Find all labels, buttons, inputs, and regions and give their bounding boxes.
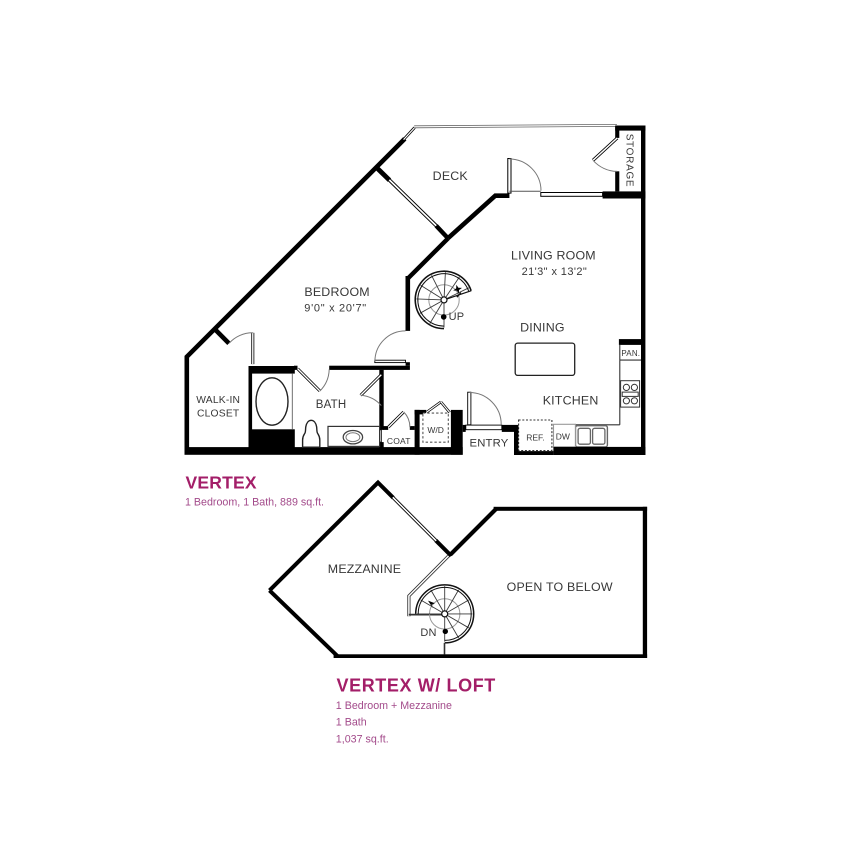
svg-text:CLOSET: CLOSET bbox=[197, 409, 240, 420]
svg-text:BEDROOM: BEDROOM bbox=[304, 285, 369, 299]
svg-text:21'3" x 13'2": 21'3" x 13'2" bbox=[522, 266, 588, 278]
svg-text:BATH: BATH bbox=[316, 399, 347, 411]
svg-text:MEZZANINE: MEZZANINE bbox=[328, 562, 401, 576]
svg-text:DW: DW bbox=[556, 431, 570, 441]
svg-text:1 Bath: 1 Bath bbox=[336, 717, 367, 729]
svg-text:LIVING ROOM: LIVING ROOM bbox=[511, 248, 596, 262]
svg-text:REF.: REF. bbox=[526, 432, 544, 442]
svg-text:DECK: DECK bbox=[433, 169, 469, 183]
svg-text:PAN.: PAN. bbox=[621, 349, 640, 358]
svg-text:1,037 sq.ft.: 1,037 sq.ft. bbox=[336, 733, 389, 745]
svg-text:W/D: W/D bbox=[427, 425, 444, 435]
svg-text:WALK-IN: WALK-IN bbox=[196, 395, 240, 406]
svg-text:STORAGE: STORAGE bbox=[624, 134, 635, 188]
svg-text:KITCHEN: KITCHEN bbox=[543, 394, 599, 408]
svg-text:DN: DN bbox=[420, 627, 436, 639]
svg-text:ENTRY: ENTRY bbox=[469, 438, 508, 450]
svg-text:VERTEX: VERTEX bbox=[186, 472, 257, 492]
svg-text:VERTEX W/ LOFT: VERTEX W/ LOFT bbox=[337, 676, 496, 696]
svg-text:9'0" x 20'7": 9'0" x 20'7" bbox=[304, 303, 367, 315]
svg-text:COAT: COAT bbox=[387, 436, 411, 446]
svg-text:DINING: DINING bbox=[520, 321, 565, 335]
svg-text:UP: UP bbox=[449, 311, 465, 323]
svg-text:1 Bedroom + Mezzanine: 1 Bedroom + Mezzanine bbox=[336, 700, 452, 712]
svg-text:1 Bedroom, 1 Bath, 889 sq.ft.: 1 Bedroom, 1 Bath, 889 sq.ft. bbox=[185, 496, 324, 508]
svg-text:OPEN TO BELOW: OPEN TO BELOW bbox=[507, 580, 613, 594]
